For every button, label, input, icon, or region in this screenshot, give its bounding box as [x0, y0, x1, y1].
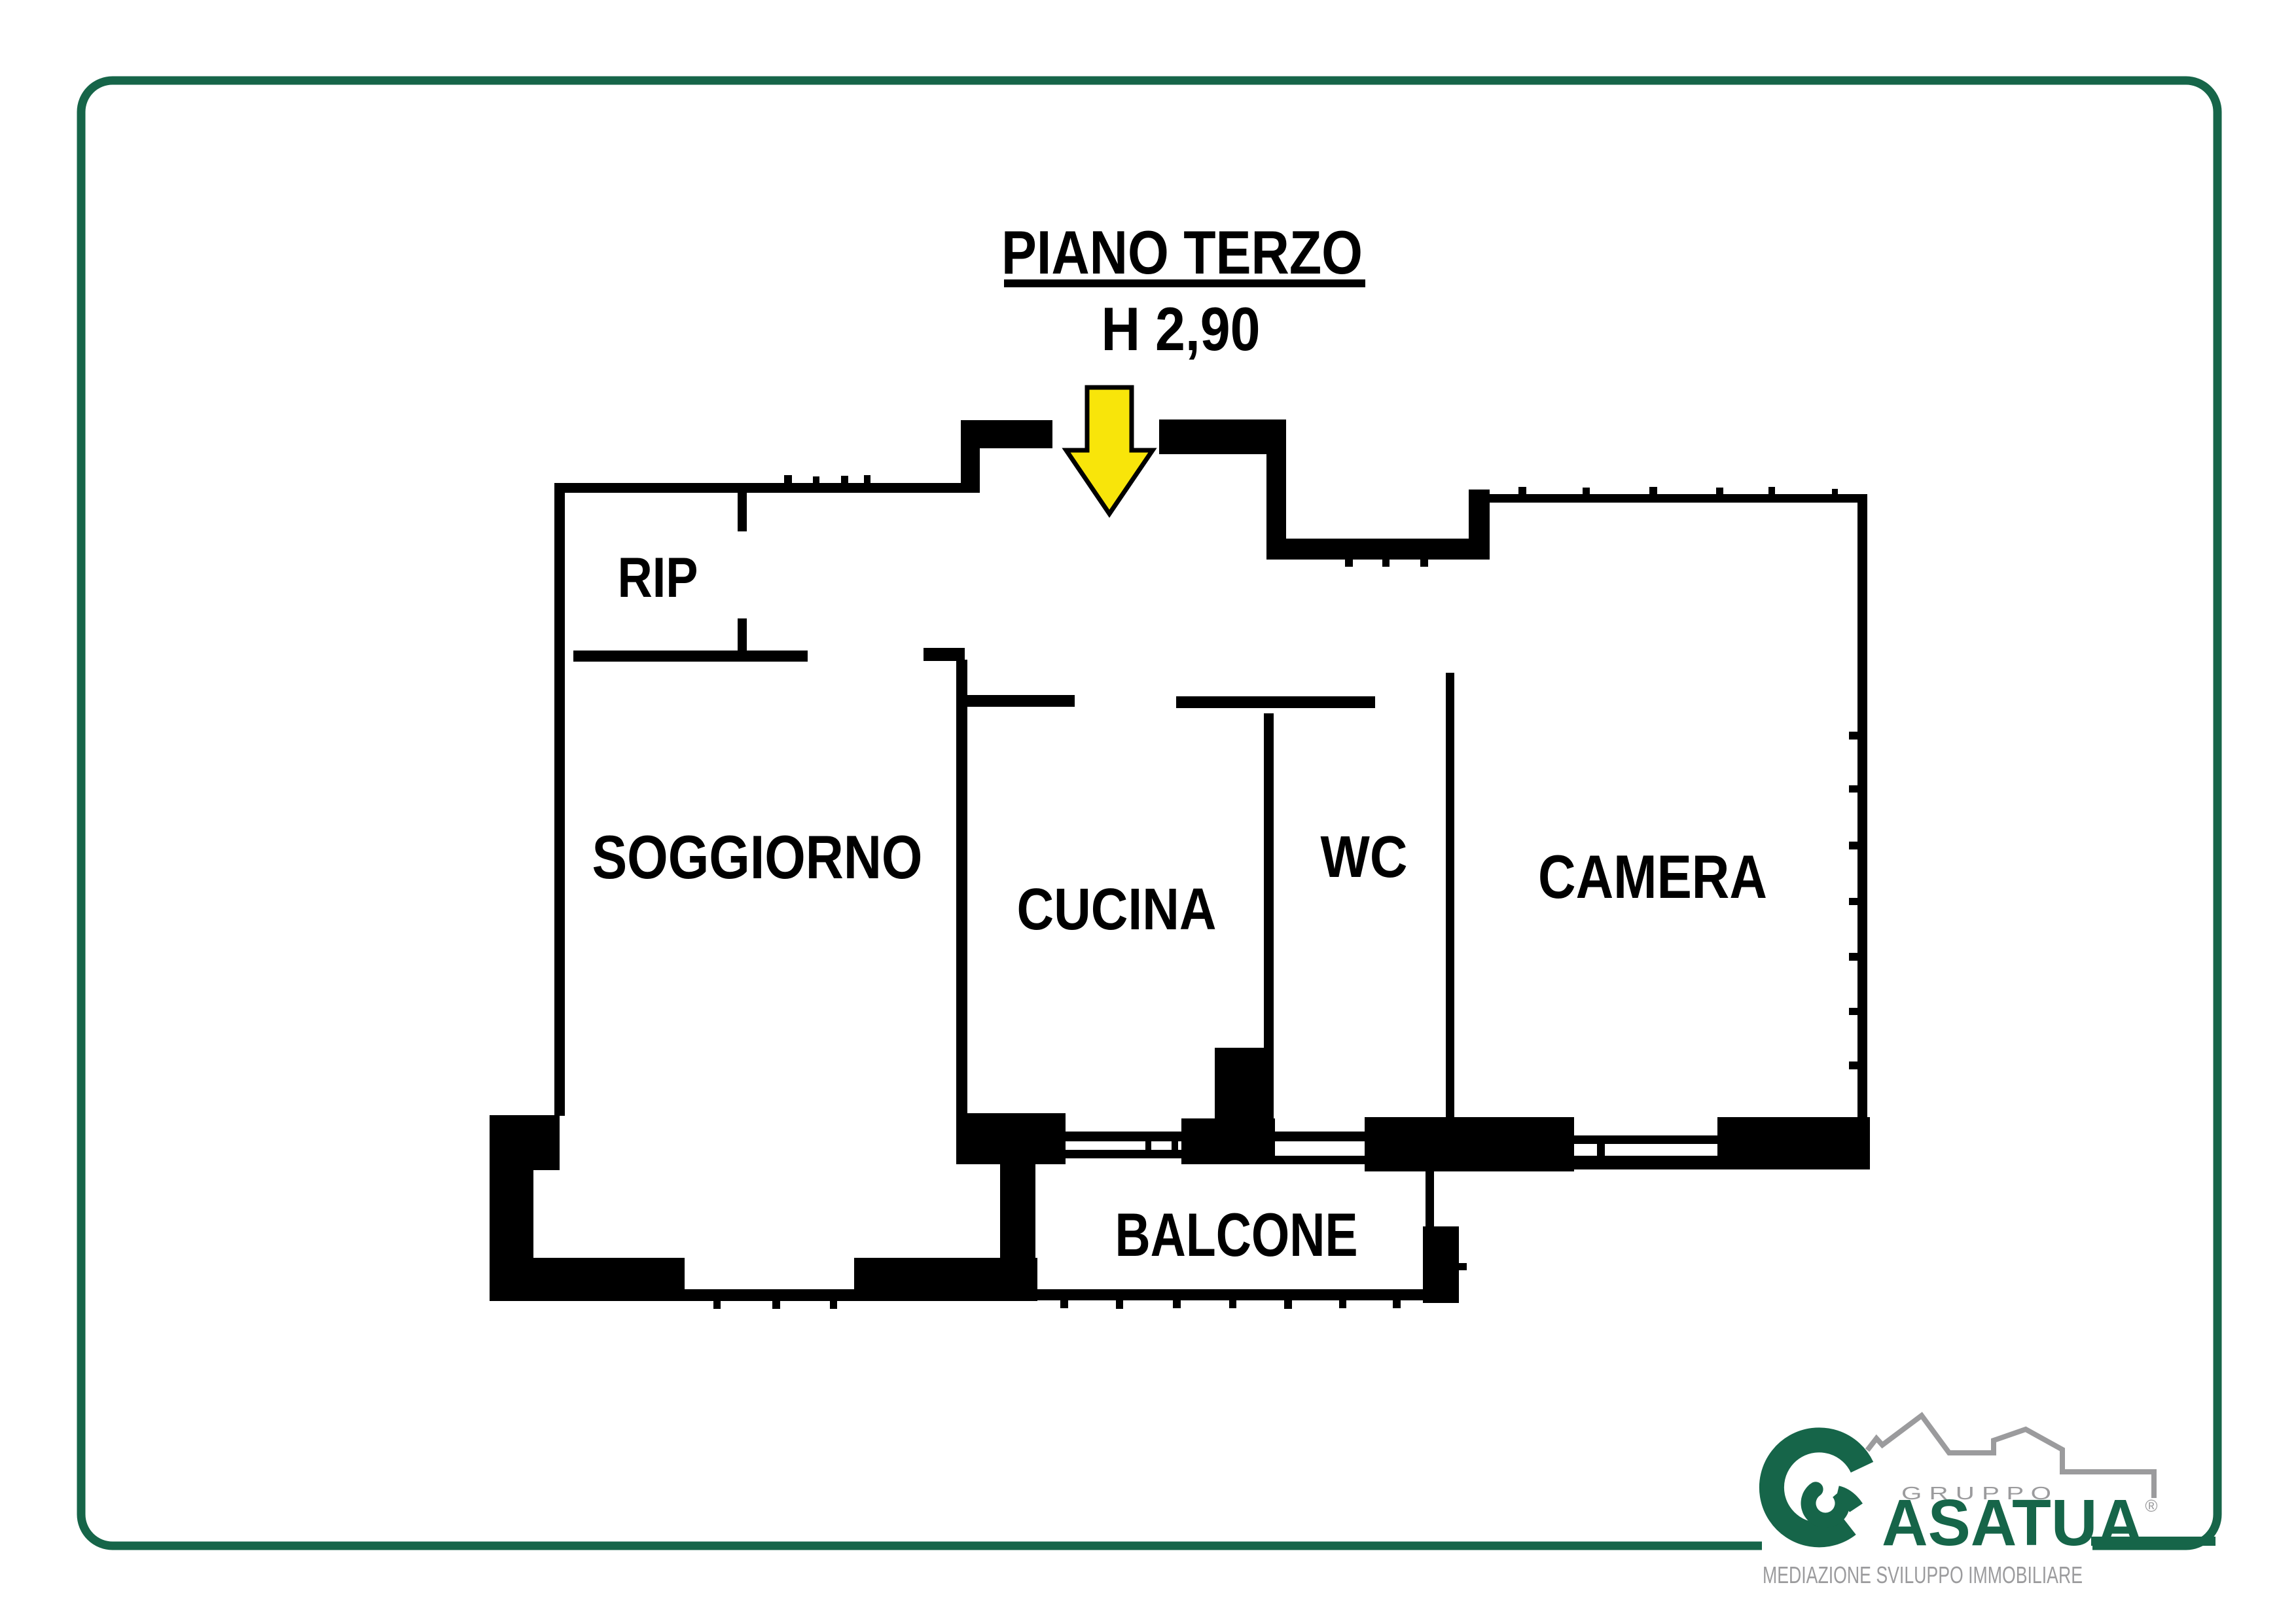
svg-text:ASATUA: ASATUA	[1882, 1486, 2144, 1560]
svg-text:SOGGIORNO: SOGGIORNO	[592, 823, 923, 891]
svg-text:MEDIAZIONE SVILUPPO IMMOBILIAR: MEDIAZIONE SVILUPPO IMMOBILIARE	[1763, 1561, 2083, 1588]
svg-text:®: ®	[2145, 1496, 2157, 1516]
svg-text:CAMERA: CAMERA	[1538, 842, 1767, 911]
svg-text:PIANO TERZO: PIANO TERZO	[1001, 218, 1363, 287]
svg-text:WC: WC	[1321, 825, 1408, 890]
svg-text:H 2,90: H 2,90	[1102, 294, 1261, 363]
svg-text:RIP: RIP	[618, 546, 698, 609]
svg-text:BALCONE: BALCONE	[1115, 1200, 1358, 1269]
svg-text:CUCINA: CUCINA	[1017, 877, 1217, 942]
